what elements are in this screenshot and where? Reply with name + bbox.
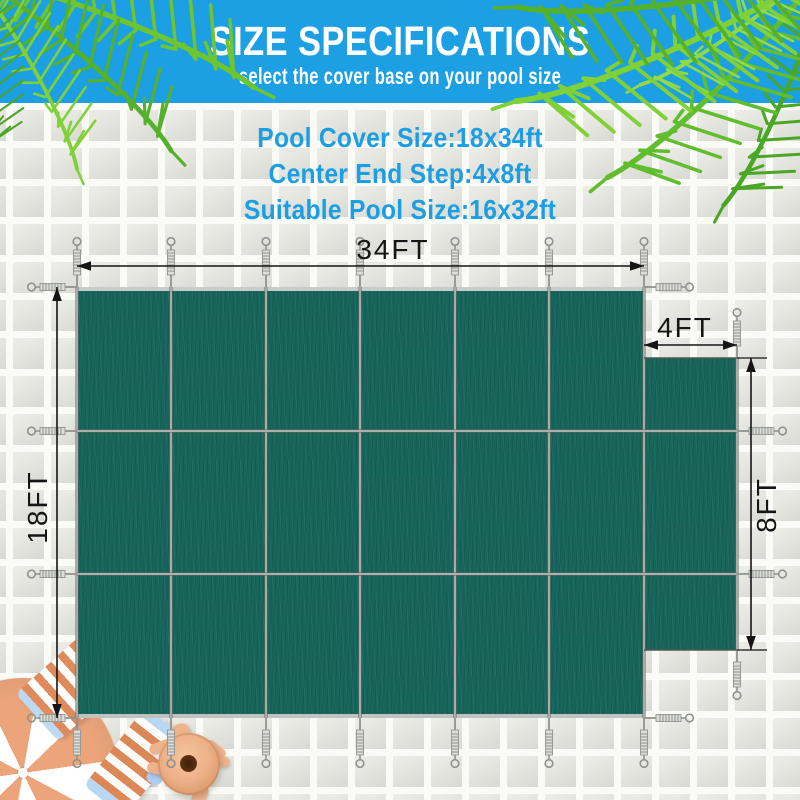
spec-line-center-end-step: Center End Step:4x8ft	[48, 156, 752, 192]
spec-line-cover-size: Pool Cover Size:18x34ft	[48, 120, 752, 156]
dimension-label-4ft: 4FT	[635, 314, 735, 342]
spec-line-suitable-pool-size: Suitable Pool Size:16x32ft	[48, 192, 752, 228]
page-subtitle: select the cover base on your pool size	[112, 63, 688, 89]
page-title: SIZE SPECIFICATIONS	[64, 20, 736, 62]
pool-cover-center-step-panel	[644, 358, 737, 650]
header-banner: SIZE SPECIFICATIONS select the cover bas…	[0, 0, 800, 103]
size-spec-text: Pool Cover Size:18x34ft Center End Step:…	[48, 120, 752, 228]
pool-cover-main-panel	[77, 287, 644, 718]
dimension-label-18ft: 18FT	[24, 447, 52, 567]
dimension-label-8ft: 8FT	[753, 445, 781, 565]
donut-float-hole	[180, 755, 197, 772]
pool-cover-size-infographic: 34FT 18FT 4FT 8FT SIZE SPECIFICATIONS se…	[0, 0, 800, 800]
dimension-label-34ft: 34FT	[333, 236, 453, 264]
